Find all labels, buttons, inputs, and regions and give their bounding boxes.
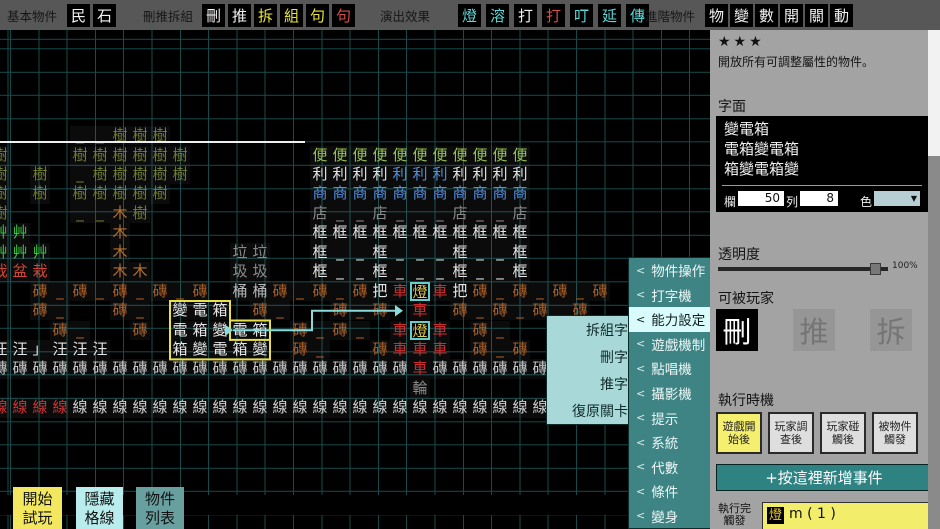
map-tile[interactable]: 磚 — [550, 282, 570, 301]
color-dropdown[interactable]: ▼ — [874, 191, 920, 206]
map-tile[interactable]: 艸 — [0, 223, 10, 242]
map-tile[interactable]: 磚 — [510, 359, 530, 378]
map-tile[interactable]: 盆 — [10, 262, 30, 281]
scrollbar-thumb[interactable] — [928, 30, 940, 156]
map-tile[interactable]: 商 — [310, 184, 330, 203]
map-tile[interactable]: _ — [470, 301, 490, 320]
map-tile[interactable]: 磚 — [470, 359, 490, 378]
map-tile[interactable]: _ — [70, 321, 90, 340]
map-tile[interactable]: 把 — [370, 282, 390, 301]
map-tile[interactable]: 車 — [410, 359, 430, 378]
timing-option-2[interactable]: 玩家調查後 — [768, 412, 814, 454]
map-tile[interactable]: 樹 — [130, 146, 150, 165]
map-tile[interactable]: 圾 — [230, 262, 250, 281]
map-tile[interactable]: _ — [90, 282, 110, 301]
map-tile[interactable]: 便 — [450, 146, 470, 165]
map-tile[interactable]: 線 — [390, 398, 410, 417]
map-tile[interactable]: 框 — [390, 223, 410, 242]
map-tile[interactable]: 利 — [510, 165, 530, 184]
map-tile[interactable]: 磚 — [130, 321, 150, 340]
object-list-button[interactable]: 物件列表 — [136, 487, 184, 529]
map-tile[interactable]: 栽 — [0, 262, 10, 281]
toolbar-object-button[interactable]: 開 — [780, 4, 803, 27]
map-tile[interactable]: 電 — [170, 321, 190, 340]
selected-lamp-tile[interactable]: 燈 — [410, 282, 430, 301]
map-tile[interactable]: 車 — [410, 340, 430, 359]
map-tile[interactable]: _ — [390, 262, 410, 281]
toolbar-object-button[interactable]: 推 — [228, 4, 251, 27]
map-tile[interactable]: 商 — [430, 184, 450, 203]
map-tile[interactable]: _ — [70, 204, 90, 223]
map-tile[interactable]: 變 — [210, 321, 230, 340]
map-tile[interactable]: 線 — [370, 398, 390, 417]
map-tile[interactable]: 磚 — [470, 340, 490, 359]
map-tile[interactable]: 磚 — [490, 359, 510, 378]
menu-item[interactable]: <能力設定 — [629, 307, 710, 332]
map-tile[interactable]: _ — [490, 243, 510, 262]
toolbar-object-button[interactable]: 物 — [705, 4, 728, 27]
map-tile[interactable]: _ — [390, 243, 410, 262]
map-tile[interactable]: 磚 — [50, 359, 70, 378]
map-tile[interactable]: _ — [350, 243, 370, 262]
map-tile[interactable]: 框 — [510, 223, 530, 242]
map-tile[interactable]: 磚 — [590, 282, 610, 301]
toolbar-object-button[interactable]: 組 — [280, 4, 303, 27]
map-tile[interactable]: 木 — [110, 223, 130, 242]
map-tile[interactable]: 線 — [470, 398, 490, 417]
map-tile[interactable]: 磚 — [130, 359, 150, 378]
map-tile[interactable]: 磚 — [330, 359, 350, 378]
map-tile[interactable]: 電 — [210, 340, 230, 359]
map-tile[interactable]: 磚 — [370, 340, 390, 359]
map-tile[interactable]: 框 — [410, 223, 430, 242]
menu-item[interactable]: <系統 — [629, 430, 710, 455]
toolbar-object-button[interactable]: 燈 — [458, 4, 481, 27]
map-tile[interactable]: 框 — [450, 223, 470, 242]
map-tile[interactable]: 便 — [390, 146, 410, 165]
map-tile[interactable]: 磚 — [510, 340, 530, 359]
map-tile[interactable]: 線 — [170, 398, 190, 417]
map-tile[interactable]: _ — [330, 282, 350, 301]
timing-option-3[interactable]: 玩家碰觸後 — [820, 412, 866, 454]
map-tile[interactable]: 磚 — [270, 282, 290, 301]
map-tile[interactable]: 把 — [450, 282, 470, 301]
map-tile[interactable]: 磚 — [50, 321, 70, 340]
map-tile[interactable]: 店 — [310, 204, 330, 223]
map-tile[interactable]: 框 — [350, 223, 370, 242]
map-tile[interactable]: 磚 — [390, 359, 410, 378]
map-tile[interactable]: 樹 — [0, 204, 10, 223]
map-tile[interactable]: 磚 — [290, 340, 310, 359]
menu-item[interactable]: <條件 — [629, 479, 710, 504]
map-tile[interactable]: 線 — [90, 398, 110, 417]
map-tile[interactable]: 框 — [370, 223, 390, 242]
map-tile[interactable]: _ — [270, 301, 290, 320]
map-tile[interactable]: 便 — [470, 146, 490, 165]
map-tile[interactable]: 利 — [370, 165, 390, 184]
map-tile[interactable]: 商 — [470, 184, 490, 203]
map-tile[interactable]: 商 — [490, 184, 510, 203]
start-playtest-button[interactable]: 開始試玩 — [13, 487, 62, 529]
map-tile[interactable]: _ — [490, 282, 510, 301]
map-tile[interactable]: 利 — [310, 165, 330, 184]
map-tile[interactable]: 框 — [470, 223, 490, 242]
map-tile[interactable]: _ — [350, 262, 370, 281]
map-tile[interactable]: 變 — [190, 340, 210, 359]
map-tile[interactable]: 艸 — [10, 223, 30, 242]
map-tile[interactable]: 磚 — [190, 282, 210, 301]
map-tile[interactable]: _ — [410, 204, 430, 223]
map-tile[interactable]: 艸 — [30, 243, 50, 262]
map-tile[interactable]: 磚 — [30, 359, 50, 378]
map-tile[interactable]: 汪 — [70, 340, 90, 359]
menu-item[interactable]: <提示 — [629, 405, 710, 430]
toolbar-object-button[interactable]: 刪 — [202, 4, 225, 27]
map-tile[interactable]: 線 — [30, 398, 50, 417]
map-tile[interactable]: 框 — [510, 243, 530, 262]
map-tile[interactable]: 框 — [310, 262, 330, 281]
toolbar-object-button[interactable]: 打 — [542, 4, 565, 27]
map-tile[interactable]: _ — [490, 340, 510, 359]
map-tile[interactable]: 車 — [430, 340, 450, 359]
map-tile[interactable]: 箱 — [250, 321, 270, 340]
map-tile[interactable]: 利 — [330, 165, 350, 184]
map-tile[interactable]: 線 — [250, 398, 270, 417]
map-tile[interactable]: 變 — [170, 301, 190, 320]
map-tile[interactable]: 木 — [110, 243, 130, 262]
sidebar-scrollbar[interactable] — [928, 30, 940, 529]
map-tile[interactable]: _ — [330, 204, 350, 223]
map-tile[interactable]: 便 — [330, 146, 350, 165]
opacity-slider-track[interactable] — [718, 267, 888, 271]
map-tile[interactable]: 樹 — [150, 165, 170, 184]
menu-item[interactable]: <打字機 — [629, 283, 710, 308]
map-tile[interactable]: 磚 — [0, 359, 10, 378]
add-event-button[interactable]: +按這裡新增事件 — [716, 464, 932, 491]
map-tile[interactable]: 磚 — [370, 301, 390, 320]
map-tile[interactable]: 商 — [410, 184, 430, 203]
map-tile[interactable]: 框 — [430, 223, 450, 242]
menu-item[interactable]: <代數 — [629, 454, 710, 479]
map-tile[interactable]: 店 — [510, 204, 530, 223]
menu-item[interactable]: <攝影機 — [629, 381, 710, 406]
map-tile[interactable]: 磚 — [350, 282, 370, 301]
map-tile[interactable]: 商 — [370, 184, 390, 203]
map-tile[interactable]: 變 — [250, 340, 270, 359]
map-tile[interactable]: 便 — [410, 146, 430, 165]
map-tile[interactable]: 磚 — [210, 359, 230, 378]
map-tile[interactable]: 利 — [410, 165, 430, 184]
submenu-item[interactable]: 復原關卡 — [547, 397, 635, 424]
ability-toggle-2[interactable]: 推 — [793, 309, 835, 351]
map-tile[interactable]: _ — [330, 243, 350, 262]
map-tile[interactable]: 商 — [450, 184, 470, 203]
map-tile[interactable]: 磚 — [170, 359, 190, 378]
map-tile[interactable]: 磚 — [230, 359, 250, 378]
map-tile[interactable]: 線 — [230, 398, 250, 417]
map-tile[interactable]: 框 — [370, 262, 390, 281]
map-tile[interactable]: 線 — [490, 398, 510, 417]
menu-item[interactable]: <遊戲機制 — [629, 332, 710, 357]
toolbar-object-button[interactable]: 拆 — [254, 4, 277, 27]
map-tile[interactable]: 垃 — [250, 243, 270, 262]
map-tile[interactable]: 線 — [350, 398, 370, 417]
timing-option-4[interactable]: 被物件觸發 — [872, 412, 918, 454]
map-tile[interactable]: _ — [490, 262, 510, 281]
map-tile[interactable]: 線 — [0, 398, 10, 417]
map-tile[interactable]: 磚 — [110, 282, 130, 301]
map-tile[interactable]: 磚 — [110, 301, 130, 320]
submenu-item[interactable]: 推字 — [547, 370, 635, 397]
map-tile[interactable]: 便 — [490, 146, 510, 165]
map-tile[interactable]: 線 — [410, 398, 430, 417]
map-tile[interactable]: 線 — [210, 398, 230, 417]
map-tile[interactable]: 線 — [190, 398, 210, 417]
map-tile[interactable]: 樹 — [110, 146, 130, 165]
map-tile[interactable]: 」 — [30, 340, 50, 359]
map-tile[interactable]: 樹 — [30, 184, 50, 203]
map-tile[interactable]: _ — [510, 301, 530, 320]
map-tile[interactable]: 磚 — [250, 301, 270, 320]
map-tile[interactable]: 線 — [310, 398, 330, 417]
map-tile[interactable]: _ — [170, 282, 190, 301]
map-tile[interactable]: 磚 — [10, 359, 30, 378]
map-tile[interactable]: 便 — [350, 146, 370, 165]
map-tile[interactable]: 磚 — [270, 359, 290, 378]
map-tile[interactable]: 框 — [450, 262, 470, 281]
map-tile[interactable]: 利 — [490, 165, 510, 184]
ability-toggle-1[interactable]: 刪 — [716, 309, 758, 351]
map-tile[interactable]: 磚 — [70, 359, 90, 378]
toolbar-object-button[interactable]: 句 — [332, 4, 355, 27]
map-tile[interactable]: 磚 — [70, 282, 90, 301]
map-tile[interactable]: _ — [50, 301, 70, 320]
map-tile[interactable]: 利 — [450, 165, 470, 184]
map-tile[interactable]: 磚 — [150, 282, 170, 301]
toolbar-object-button[interactable]: 關 — [805, 4, 828, 27]
map-tile[interactable]: 磚 — [350, 359, 370, 378]
map-tile[interactable]: 框 — [330, 223, 350, 242]
map-tile[interactable]: 樹 — [90, 146, 110, 165]
map-tile[interactable]: 便 — [310, 146, 330, 165]
map-tile[interactable]: 磚 — [30, 301, 50, 320]
map-tile[interactable]: _ — [430, 262, 450, 281]
menu-item[interactable]: <物件操作 — [629, 258, 710, 283]
map-tile[interactable]: 汪 — [10, 340, 30, 359]
map-tile[interactable]: 磚 — [290, 321, 310, 340]
map-tile[interactable]: 線 — [290, 398, 310, 417]
map-tile[interactable]: 桶 — [230, 282, 250, 301]
map-tile[interactable]: 線 — [130, 398, 150, 417]
map-tile[interactable]: 電 — [190, 301, 210, 320]
toolbar-object-button[interactable]: 民 — [67, 4, 90, 27]
map-tile[interactable]: _ — [470, 243, 490, 262]
map-tile[interactable]: 框 — [370, 243, 390, 262]
map-tile[interactable]: 汪 — [90, 340, 110, 359]
map-tile[interactable]: 磚 — [470, 321, 490, 340]
map-tile[interactable]: 木 — [110, 204, 130, 223]
map-tile[interactable]: 木 — [110, 262, 130, 281]
map-tile[interactable]: 磚 — [450, 359, 470, 378]
map-tile[interactable]: _ — [70, 165, 90, 184]
map-tile[interactable]: 桶 — [250, 282, 270, 301]
map-tile[interactable]: 磚 — [90, 359, 110, 378]
selected-lamp-tile[interactable]: 燈 — [410, 321, 430, 340]
map-tile[interactable]: 樹 — [90, 165, 110, 184]
ability-toggle-3[interactable]: 拆 — [870, 309, 912, 351]
cols-input[interactable]: 50 — [738, 191, 784, 206]
opacity-slider-thumb[interactable] — [870, 263, 881, 275]
map-tile[interactable]: _ — [310, 321, 330, 340]
map-tile[interactable]: 框 — [310, 243, 330, 262]
map-tile[interactable]: 箱 — [170, 340, 190, 359]
map-tile[interactable]: _ — [530, 282, 550, 301]
map-tile[interactable]: 樹 — [70, 146, 90, 165]
map-tile[interactable]: _ — [490, 321, 510, 340]
map-tile[interactable]: 電 — [230, 321, 250, 340]
map-tile[interactable]: _ — [290, 282, 310, 301]
map-tile[interactable]: 磚 — [430, 359, 450, 378]
map-tile[interactable]: 磚 — [370, 359, 390, 378]
map-tile[interactable]: 艸 — [0, 243, 10, 262]
map-tile[interactable]: 車 — [430, 282, 450, 301]
toolbar-object-button[interactable]: 數 — [755, 4, 778, 27]
map-tile[interactable]: _ — [470, 262, 490, 281]
toolbar-object-button[interactable]: 延 — [598, 4, 621, 27]
map-tile[interactable]: 樹 — [0, 165, 10, 184]
map-tile[interactable]: 磚 — [290, 359, 310, 378]
map-tile[interactable]: 樹 — [110, 165, 130, 184]
map-tile[interactable]: 線 — [330, 398, 350, 417]
map-tile[interactable]: 磚 — [30, 282, 50, 301]
map-tile[interactable]: 商 — [330, 184, 350, 203]
map-tile[interactable]: 線 — [430, 398, 450, 417]
map-tile[interactable]: 樹 — [90, 184, 110, 203]
map-tile[interactable]: 磚 — [310, 359, 330, 378]
timing-option-1[interactable]: 遊戲開始後 — [716, 412, 762, 454]
toolbar-object-button[interactable]: 叮 — [570, 4, 593, 27]
map-tile[interactable]: 樹 — [150, 184, 170, 203]
map-tile[interactable]: 商 — [510, 184, 530, 203]
submenu-item[interactable]: 刪字 — [547, 343, 635, 370]
map-tile[interactable]: 框 — [490, 223, 510, 242]
map-tile[interactable]: 樹 — [0, 146, 10, 165]
map-tile[interactable]: _ — [350, 204, 370, 223]
map-tile[interactable]: 汪 — [0, 340, 10, 359]
map-tile[interactable]: 車 — [430, 321, 450, 340]
map-tile[interactable]: 線 — [510, 398, 530, 417]
map-tile[interactable]: 輪 — [410, 379, 430, 398]
map-tile[interactable]: 利 — [470, 165, 490, 184]
map-tile[interactable]: 線 — [150, 398, 170, 417]
map-tile[interactable]: 樹 — [150, 146, 170, 165]
map-tile[interactable]: _ — [430, 243, 450, 262]
map-tile[interactable]: 便 — [370, 146, 390, 165]
map-tile[interactable]: 箱 — [210, 301, 230, 320]
map-tile[interactable]: _ — [50, 282, 70, 301]
face-text-input[interactable]: 變電箱 電箱變電箱 箱變電箱變 — [724, 119, 799, 179]
map-tile[interactable]: _ — [570, 282, 590, 301]
map-tile[interactable]: _ — [90, 204, 110, 223]
map-tile[interactable]: 車 — [390, 340, 410, 359]
map-tile[interactable]: 箱 — [190, 321, 210, 340]
map-tile[interactable]: 艸 — [10, 243, 30, 262]
map-tile[interactable]: 汪 — [50, 340, 70, 359]
exec-complete-event-chip[interactable]: 燈 m ( 1 ) — [762, 502, 932, 529]
map-tile[interactable]: 線 — [70, 398, 90, 417]
map-tile[interactable]: 車 — [390, 321, 410, 340]
map-tile[interactable]: 商 — [390, 184, 410, 203]
map-canvas[interactable]: __樹樹樹樹樹樹樹樹樹樹樹樹_樹樹樹樹樹樹樹樹樹樹樹樹樹__木樹艸艸木艸艸艸木垃… — [0, 30, 710, 529]
map-tile[interactable]: 木 — [130, 262, 150, 281]
map-tile[interactable]: 樹 — [130, 184, 150, 203]
map-tile[interactable]: 便 — [430, 146, 450, 165]
map-tile[interactable]: 磚 — [510, 282, 530, 301]
map-tile[interactable]: _ — [470, 204, 490, 223]
toolbar-object-button[interactable]: 變 — [730, 4, 753, 27]
map-tile[interactable]: 樹 — [130, 204, 150, 223]
map-tile[interactable]: 線 — [110, 398, 130, 417]
map-tile[interactable]: 框 — [310, 223, 330, 242]
toolbar-object-button[interactable]: 溶 — [486, 4, 509, 27]
map-tile[interactable]: 車 — [410, 301, 430, 320]
map-tile[interactable]: _ — [330, 262, 350, 281]
map-tile[interactable]: 磚 — [490, 301, 510, 320]
map-tile[interactable]: 樹 — [170, 165, 190, 184]
map-tile[interactable]: 車 — [390, 282, 410, 301]
map-tile[interactable]: 店 — [450, 204, 470, 223]
toolbar-object-button[interactable]: 句 — [306, 4, 329, 27]
map-tile[interactable]: 便 — [510, 146, 530, 165]
map-tile[interactable]: 樹 — [70, 184, 90, 203]
map-tile[interactable]: 線 — [270, 398, 290, 417]
map-tile[interactable]: 磚 — [330, 321, 350, 340]
map-tile[interactable]: 商 — [350, 184, 370, 203]
map-tile[interactable]: 磚 — [150, 359, 170, 378]
map-tile[interactable]: 利 — [390, 165, 410, 184]
menu-item[interactable]: <點唱機 — [629, 356, 710, 381]
map-tile[interactable]: 樹 — [110, 184, 130, 203]
map-tile[interactable]: 樹 — [170, 146, 190, 165]
map-tile[interactable]: _ — [310, 340, 330, 359]
map-tile[interactable]: _ — [350, 301, 370, 320]
map-tile[interactable]: 框 — [510, 262, 530, 281]
submenu-item[interactable]: 拆組字 — [547, 316, 635, 343]
toolbar-object-button[interactable]: 石 — [93, 4, 116, 27]
hide-gridlines-button[interactable]: 隱藏格線 — [76, 487, 123, 529]
map-tile[interactable]: 線 — [450, 398, 470, 417]
map-tile[interactable]: 箱 — [230, 340, 250, 359]
map-tile[interactable]: _ — [410, 243, 430, 262]
map-tile[interactable]: 磚 — [330, 301, 350, 320]
map-tile[interactable]: 樹 — [130, 165, 150, 184]
map-tile[interactable]: 利 — [350, 165, 370, 184]
map-tile[interactable]: 磚 — [110, 359, 130, 378]
menu-item[interactable]: <變身 — [629, 503, 710, 528]
map-tile[interactable]: _ — [390, 204, 410, 223]
rows-input[interactable]: 8 — [800, 191, 838, 206]
map-tile[interactable]: _ — [490, 204, 510, 223]
map-tile[interactable]: 磚 — [190, 359, 210, 378]
map-tile[interactable]: _ — [130, 301, 150, 320]
map-tile[interactable]: 利 — [430, 165, 450, 184]
map-tile[interactable]: 磚 — [310, 282, 330, 301]
map-tile[interactable]: 垃 — [230, 243, 250, 262]
map-tile[interactable]: 磚 — [450, 301, 470, 320]
map-tile[interactable]: _ — [430, 204, 450, 223]
map-tile[interactable]: 磚 — [470, 282, 490, 301]
map-tile[interactable]: 樹 — [30, 165, 50, 184]
